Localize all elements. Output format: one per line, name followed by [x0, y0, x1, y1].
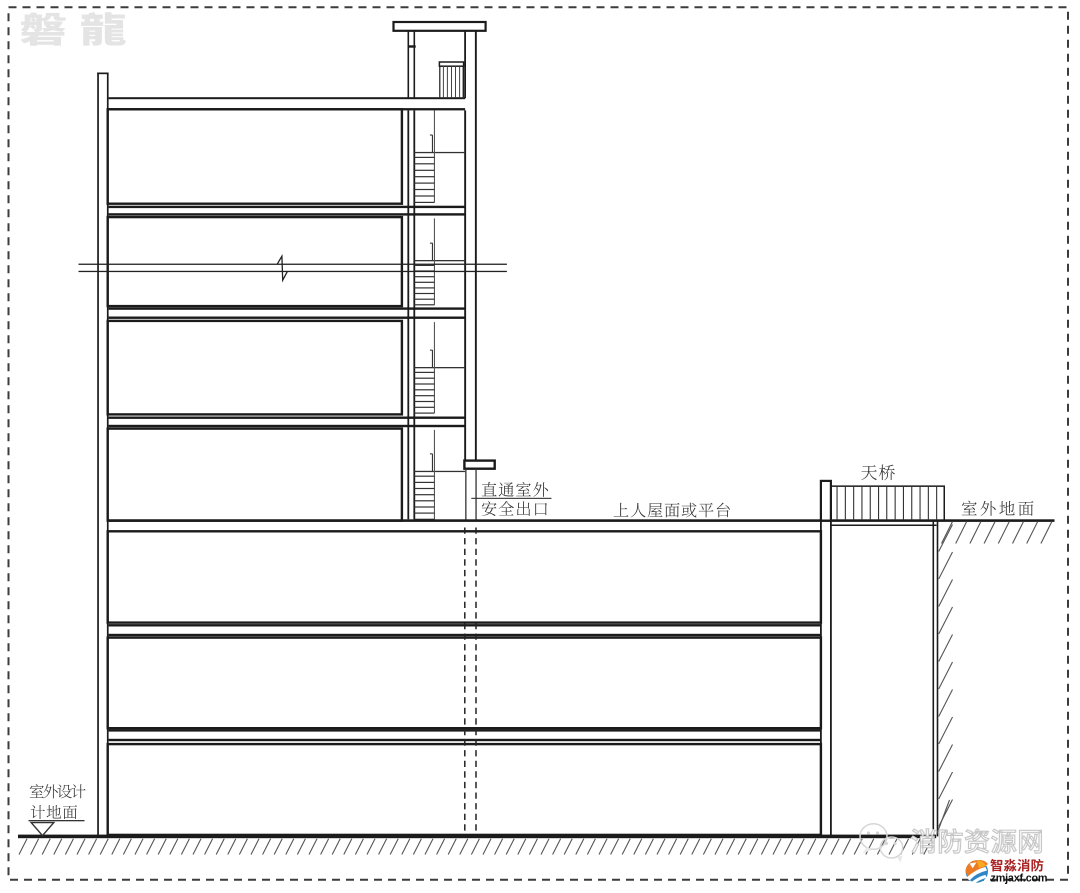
svg-text:zmjaxf.com: zmjaxf.com — [991, 873, 1048, 885]
